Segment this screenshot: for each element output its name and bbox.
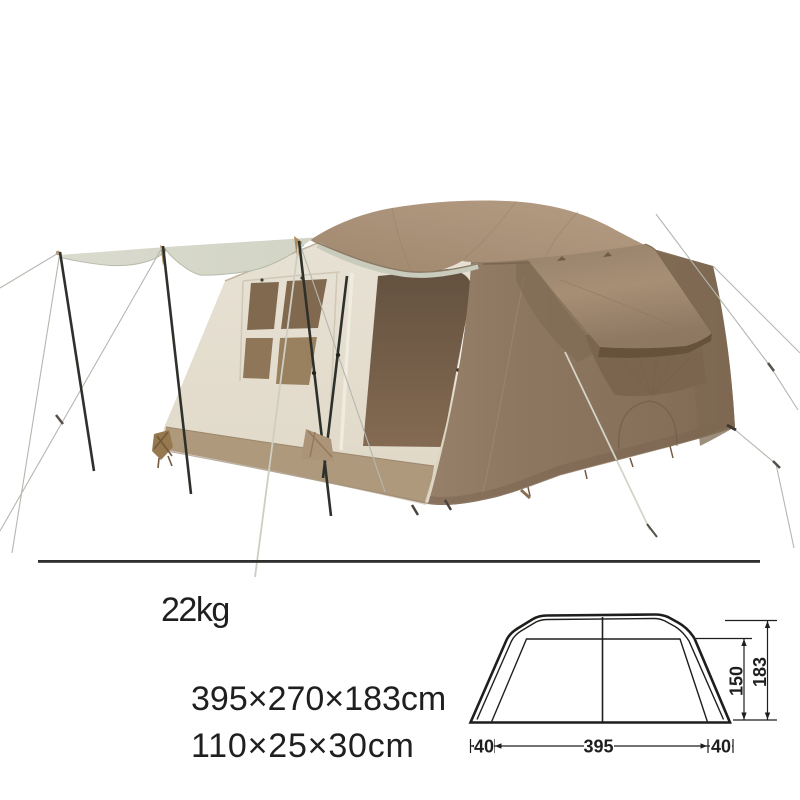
svg-text:395×270×183cm: 395×270×183cm	[191, 680, 446, 718]
svg-text:150: 150	[727, 666, 747, 696]
svg-text:395: 395	[583, 737, 613, 757]
svg-text:110×25×30cm: 110×25×30cm	[191, 727, 415, 765]
svg-text:40: 40	[474, 737, 494, 757]
svg-text:40: 40	[711, 737, 731, 757]
svg-text:22kg: 22kg	[161, 591, 229, 629]
svg-text:183: 183	[750, 657, 770, 687]
